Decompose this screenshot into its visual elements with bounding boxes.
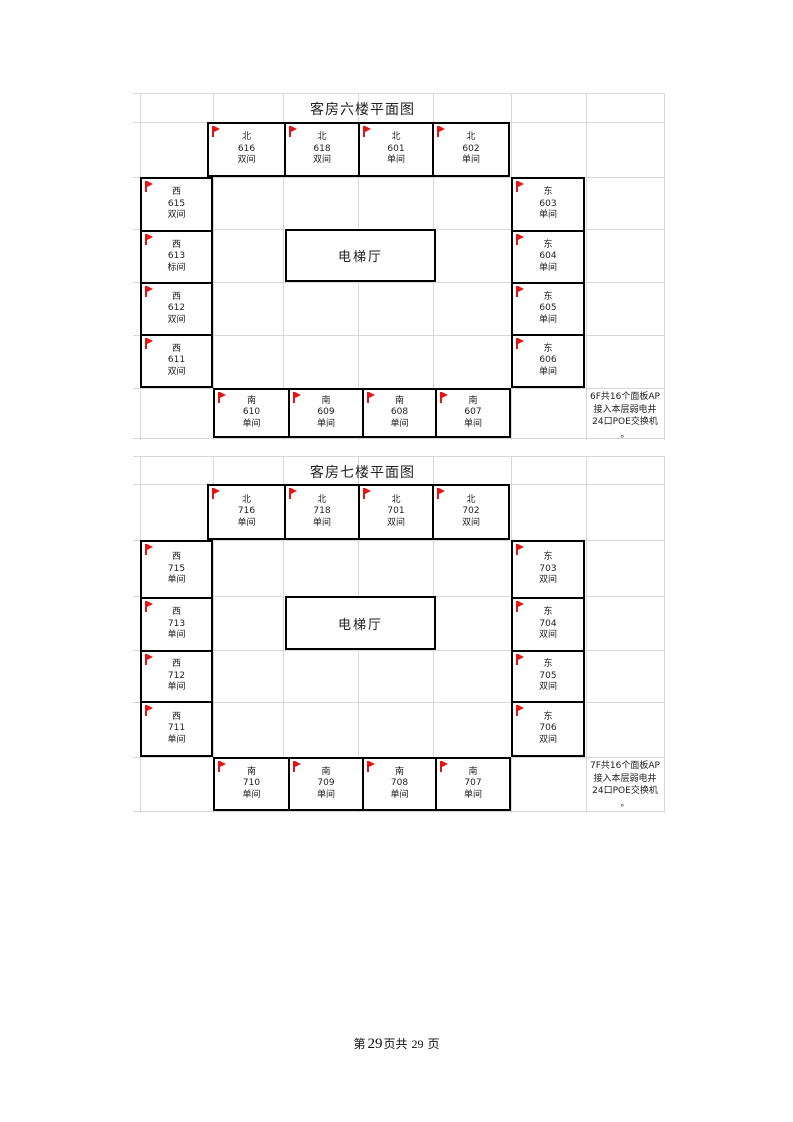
room-direction: 南 — [395, 767, 404, 779]
room-direction: 西 — [172, 187, 181, 199]
north-room-row: 北716单间北718单间北701双间北702双间 — [207, 484, 510, 540]
room-number: 715 — [168, 564, 185, 576]
room-direction: 东 — [543, 607, 552, 619]
footer-suffix: 页 — [428, 1037, 440, 1051]
room-type: 单间 — [167, 630, 185, 642]
room-direction: 东 — [543, 552, 552, 564]
ap-flag-icon — [516, 234, 518, 245]
room-direction: 东 — [543, 712, 552, 724]
ap-flag-icon — [212, 488, 214, 499]
ap-flag-icon — [145, 705, 147, 716]
east-room-column: 东603单间东604单间东605单间东606单间 — [511, 177, 585, 388]
ap-note-line: 。 — [586, 429, 664, 442]
page-footer: 第29页共29页 — [0, 1035, 793, 1053]
room-613: 西613标间 — [142, 230, 211, 282]
room-direction: 北 — [466, 495, 475, 507]
room-number: 605 — [539, 303, 556, 315]
ap-flag-icon — [289, 488, 291, 499]
room-direction: 北 — [466, 132, 475, 144]
room-603: 东603单间 — [513, 179, 583, 230]
west-room-column: 西715单间西713单间西712单间西711单间 — [140, 540, 213, 757]
ap-flag-icon — [516, 338, 518, 349]
room-number: 707 — [464, 778, 481, 790]
room-608: 南608单间 — [362, 390, 435, 436]
room-label: 东603单间 — [539, 187, 557, 222]
floor-title: 客房七楼平面图 — [140, 462, 585, 482]
room-label: 南609单间 — [317, 396, 335, 431]
south-room-row: 南610单间南609单间南608单间南607单间 — [213, 388, 511, 438]
room-type: 双间 — [539, 735, 557, 747]
elevator-hall: 电梯厅 — [285, 596, 436, 650]
elevator-hall: 电梯厅 — [285, 229, 436, 282]
room-number: 618 — [313, 144, 330, 156]
room-number: 706 — [539, 723, 556, 735]
room-label: 南607单间 — [464, 396, 482, 431]
ap-flag-icon — [145, 544, 147, 555]
room-number: 611 — [168, 355, 185, 367]
room-type: 双间 — [539, 630, 557, 642]
room-number: 610 — [243, 407, 260, 419]
room-715: 西715单间 — [142, 542, 211, 597]
grid-line — [586, 93, 587, 440]
room-label: 北716单间 — [237, 495, 255, 530]
room-label: 北618双间 — [313, 132, 331, 167]
room-number: 716 — [238, 506, 255, 518]
room-number: 703 — [539, 564, 556, 576]
room-611: 西611双间 — [142, 334, 211, 386]
room-618: 北618双间 — [284, 124, 358, 175]
room-number: 710 — [243, 778, 260, 790]
room-direction: 南 — [468, 396, 477, 408]
room-number: 604 — [539, 251, 556, 263]
room-label: 西713单间 — [167, 607, 185, 642]
room-612: 西612双间 — [142, 282, 211, 334]
room-type: 单间 — [167, 735, 185, 747]
ap-flag-icon — [440, 392, 442, 403]
ap-flag-icon — [516, 601, 518, 612]
room-606: 东606单间 — [513, 334, 583, 386]
room-type: 单间 — [539, 315, 557, 327]
room-direction: 东 — [543, 240, 552, 252]
ap-note: 6F共16个面板AP接入本层弱电井24口POE交换机。 — [586, 391, 664, 441]
room-number: 606 — [539, 355, 556, 367]
room-type: 双间 — [167, 315, 185, 327]
ap-flag-icon — [293, 761, 295, 772]
room-type: 单间 — [242, 419, 260, 431]
room-type: 单间 — [539, 210, 557, 222]
room-label: 南608单间 — [390, 396, 408, 431]
room-label: 西611双间 — [167, 344, 185, 379]
ap-note: 7F共16个面板AP接入本层弱电井24口POE交换机。 — [586, 760, 664, 810]
room-direction: 北 — [317, 132, 326, 144]
room-direction: 南 — [321, 767, 330, 779]
room-number: 612 — [168, 303, 185, 315]
room-type: 单间 — [167, 575, 185, 587]
elevator-hall-label: 电梯厅 — [338, 614, 383, 633]
room-label: 南610单间 — [242, 396, 260, 431]
room-707: 南707单间 — [435, 759, 509, 809]
room-direction: 西 — [172, 659, 181, 671]
room-direction: 北 — [317, 495, 326, 507]
room-713: 西713单间 — [142, 597, 211, 650]
room-type: 单间 — [464, 419, 482, 431]
room-direction: 东 — [543, 659, 552, 671]
ap-note-line: 24口POE交换机 — [586, 416, 664, 429]
footer-total-pages: 29 — [412, 1037, 424, 1051]
ap-note-line: 接入本层弱电井 — [586, 404, 664, 417]
grid-line — [664, 93, 665, 440]
room-703: 东703双间 — [513, 542, 583, 597]
room-label: 西715单间 — [167, 552, 185, 587]
room-label: 南710单间 — [242, 767, 260, 802]
ap-flag-icon — [437, 488, 439, 499]
room-type: 单间 — [317, 419, 335, 431]
room-number: 602 — [462, 144, 479, 156]
room-number: 603 — [539, 199, 556, 211]
room-705: 东705双间 — [513, 650, 583, 701]
room-type: 单间 — [317, 790, 335, 802]
room-label: 东705双间 — [539, 659, 557, 694]
room-label: 东703双间 — [539, 552, 557, 587]
elevator-hall-label: 电梯厅 — [338, 246, 383, 265]
west-room-column: 西615双间西613标间西612双间西611双间 — [140, 177, 213, 388]
ap-flag-icon — [145, 181, 147, 192]
room-718: 北718单间 — [284, 486, 358, 538]
ap-note-line: 7F共16个面板AP — [586, 760, 664, 773]
footer-page-number: 29 — [367, 1036, 382, 1052]
ap-flag-icon — [437, 126, 439, 137]
room-label: 东604单间 — [539, 240, 557, 275]
room-type: 双间 — [167, 210, 185, 222]
room-direction: 西 — [172, 712, 181, 724]
room-716: 北716单间 — [209, 486, 284, 538]
room-direction: 南 — [247, 767, 256, 779]
south-room-row: 南710单间南709单间南708单间南707单间 — [213, 757, 511, 811]
room-direction: 南 — [247, 396, 256, 408]
room-label: 东606单间 — [539, 344, 557, 379]
room-direction: 南 — [321, 396, 330, 408]
ap-flag-icon — [145, 338, 147, 349]
room-type: 双间 — [462, 518, 480, 530]
room-direction: 东 — [543, 292, 552, 304]
ap-flag-icon — [516, 286, 518, 297]
room-number: 609 — [317, 407, 334, 419]
ap-flag-icon — [145, 601, 147, 612]
room-direction: 北 — [242, 495, 251, 507]
room-direction: 北 — [242, 132, 251, 144]
room-type: 单间 — [539, 367, 557, 379]
room-type: 双间 — [539, 575, 557, 587]
ap-flag-icon — [145, 286, 147, 297]
room-direction: 南 — [395, 396, 404, 408]
ap-note-line: 接入本层弱电井 — [586, 773, 664, 786]
room-type: 单间 — [464, 790, 482, 802]
room-706: 东706双间 — [513, 701, 583, 755]
room-label: 北616双间 — [237, 132, 255, 167]
room-type: 双间 — [313, 155, 331, 167]
room-number: 704 — [539, 619, 556, 631]
room-label: 南709单间 — [317, 767, 335, 802]
room-number: 702 — [462, 506, 479, 518]
room-type: 单间 — [313, 518, 331, 530]
room-701: 北701双间 — [358, 486, 432, 538]
north-room-row: 北616双间北618双间北601单间北602单间 — [207, 122, 510, 177]
room-direction: 西 — [172, 292, 181, 304]
room-direction: 东 — [543, 187, 552, 199]
ap-flag-icon — [218, 761, 220, 772]
room-number: 713 — [168, 619, 185, 631]
ap-flag-icon — [289, 126, 291, 137]
room-direction: 西 — [172, 607, 181, 619]
room-607: 南607单间 — [435, 390, 509, 436]
room-604: 东604单间 — [513, 230, 583, 282]
ap-flag-icon — [363, 126, 365, 137]
ap-note-line: 6F共16个面板AP — [586, 391, 664, 404]
room-type: 单间 — [167, 682, 185, 694]
room-601: 北601单间 — [358, 124, 432, 175]
room-type: 双间 — [167, 367, 185, 379]
room-type: 单间 — [539, 263, 557, 275]
room-704: 东704双间 — [513, 597, 583, 650]
room-label: 北701双间 — [387, 495, 405, 530]
ap-flag-icon — [440, 761, 442, 772]
ap-flag-icon — [367, 761, 369, 772]
room-type: 双间 — [539, 682, 557, 694]
room-615: 西615双间 — [142, 179, 211, 230]
room-702: 北702双间 — [432, 486, 508, 538]
room-type: 双间 — [237, 155, 255, 167]
room-number: 601 — [387, 144, 404, 156]
ap-flag-icon — [145, 234, 147, 245]
room-712: 西712单间 — [142, 650, 211, 701]
room-type: 双间 — [387, 518, 405, 530]
room-direction: 西 — [172, 344, 181, 356]
room-708: 南708单间 — [362, 759, 435, 809]
room-label: 西612双间 — [167, 292, 185, 327]
ap-flag-icon — [218, 392, 220, 403]
room-number: 718 — [313, 506, 330, 518]
room-label: 南708单间 — [390, 767, 408, 802]
room-label: 北718单间 — [313, 495, 331, 530]
east-room-column: 东703双间东704双间东705双间东706双间 — [511, 540, 585, 757]
room-type: 标间 — [167, 263, 185, 275]
room-label: 北702双间 — [462, 495, 480, 530]
ap-flag-icon — [367, 392, 369, 403]
ap-note-line: 。 — [586, 798, 664, 811]
room-number: 613 — [168, 251, 185, 263]
ap-flag-icon — [516, 544, 518, 555]
ap-flag-icon — [516, 181, 518, 192]
room-label: 西615双间 — [167, 187, 185, 222]
room-710: 南710单间 — [215, 759, 288, 809]
room-type: 单间 — [237, 518, 255, 530]
ap-flag-icon — [516, 705, 518, 716]
room-type: 单间 — [462, 155, 480, 167]
floor-title: 客房六楼平面图 — [140, 99, 585, 119]
room-label: 南707单间 — [464, 767, 482, 802]
room-type: 单间 — [242, 790, 260, 802]
room-label: 西712单间 — [167, 659, 185, 694]
room-number: 607 — [464, 407, 481, 419]
room-number: 705 — [539, 671, 556, 683]
room-direction: 北 — [391, 495, 400, 507]
room-number: 608 — [391, 407, 408, 419]
room-direction: 西 — [172, 552, 181, 564]
room-609: 南609单间 — [288, 390, 362, 436]
room-number: 709 — [317, 778, 334, 790]
ap-flag-icon — [145, 654, 147, 665]
room-number: 701 — [387, 506, 404, 518]
room-type: 单间 — [390, 790, 408, 802]
room-602: 北602单间 — [432, 124, 508, 175]
room-label: 东605单间 — [539, 292, 557, 327]
room-number: 615 — [168, 199, 185, 211]
room-605: 东605单间 — [513, 282, 583, 334]
ap-flag-icon — [516, 654, 518, 665]
room-number: 616 — [238, 144, 255, 156]
footer-prefix: 第 — [353, 1037, 365, 1051]
room-number: 711 — [168, 723, 185, 735]
footer-middle: 页共 — [383, 1037, 407, 1051]
room-direction: 南 — [468, 767, 477, 779]
room-label: 西711单间 — [167, 712, 185, 747]
room-label: 西613标间 — [167, 240, 185, 275]
room-709: 南709单间 — [288, 759, 362, 809]
room-direction: 北 — [391, 132, 400, 144]
room-610: 南610单间 — [215, 390, 288, 436]
room-label: 东706双间 — [539, 712, 557, 747]
room-711: 西711单间 — [142, 701, 211, 755]
grid-line — [664, 456, 665, 813]
ap-flag-icon — [363, 488, 365, 499]
room-number: 708 — [391, 778, 408, 790]
room-direction: 西 — [172, 240, 181, 252]
ap-note-line: 24口POE交换机 — [586, 785, 664, 798]
ap-flag-icon — [293, 392, 295, 403]
room-type: 单间 — [387, 155, 405, 167]
document-page: 客房六楼平面图北616双间北618双间北601单间北602单间西615双间西61… — [0, 0, 793, 1122]
room-type: 单间 — [390, 419, 408, 431]
room-label: 北601单间 — [387, 132, 405, 167]
ap-flag-icon — [212, 126, 214, 137]
room-direction: 东 — [543, 344, 552, 356]
room-616: 北616双间 — [209, 124, 284, 175]
room-label: 东704双间 — [539, 607, 557, 642]
room-label: 北602单间 — [462, 132, 480, 167]
room-number: 712 — [168, 671, 185, 683]
